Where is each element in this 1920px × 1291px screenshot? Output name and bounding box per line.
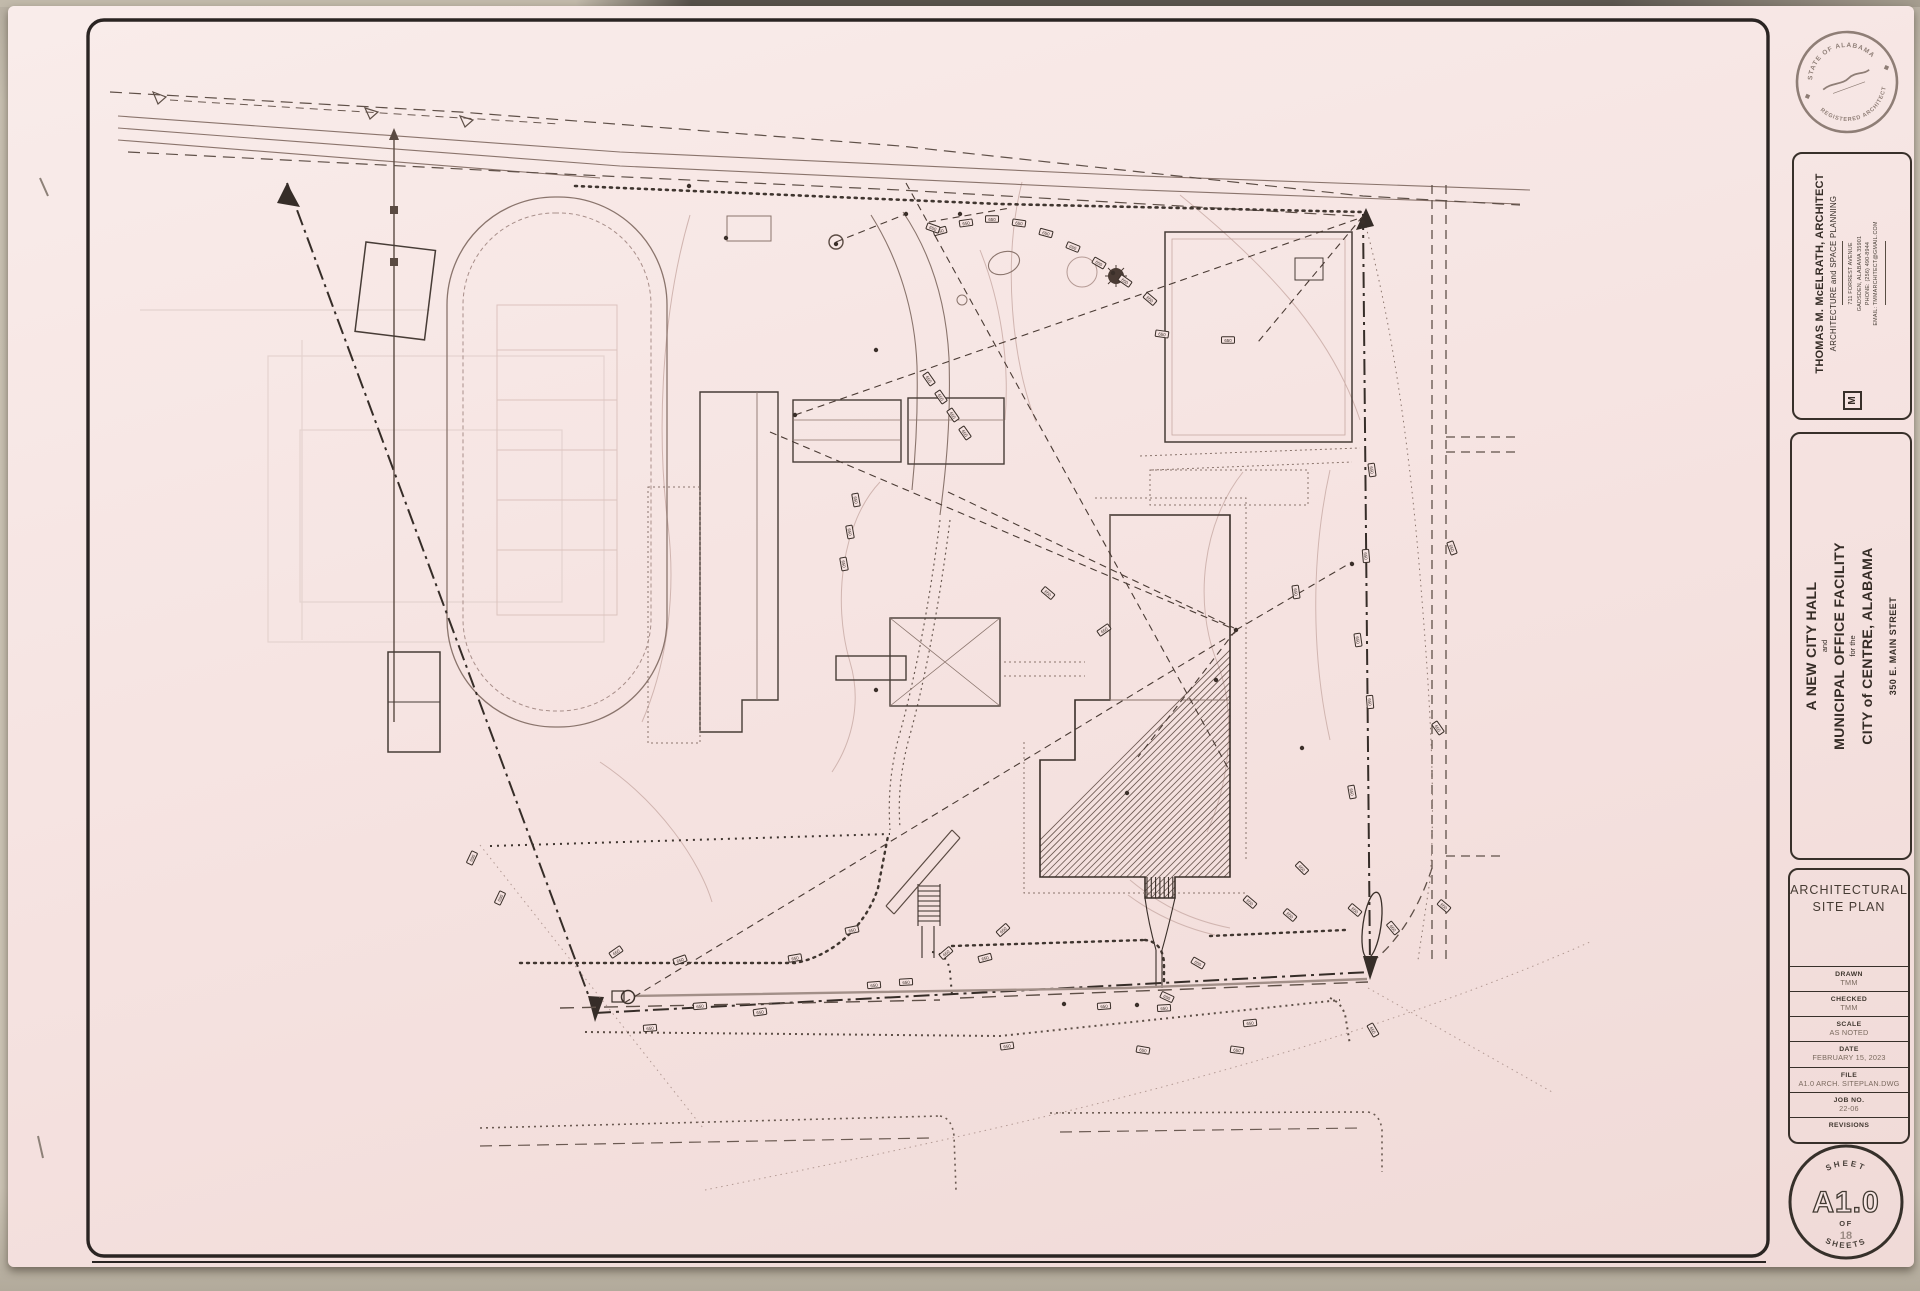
field-value: TMM [1790,978,1908,987]
field-label: CHECKED [1790,996,1908,1003]
west-buildings [355,242,440,752]
project-line1: A NEW CITY HALL [1802,542,1820,750]
stamp-signature [1822,69,1870,89]
svg-text:650: 650 [1363,552,1369,560]
svg-text:650: 650 [1246,1020,1254,1026]
svg-text:SHEET: SHEET [1824,1159,1867,1173]
bleed-ghost-lines [140,310,604,642]
title-block-field-file: FILEA1.0 ARCH. SITEPLAN.DWG [1790,1067,1908,1092]
entrance-drive [829,212,1127,515]
architect-seal-stamp: STATE OF ALABAMA REGISTERED ARCHITECT [1790,25,1905,140]
survey-dots [687,184,1365,1007]
curved-walk [889,520,950,830]
title-block-field-drawn: DRAWNTMM [1790,966,1908,991]
title-block-field-checked: CHECKEDTMM [1790,991,1908,1016]
drawing-sheet: 6506506506506506506506506506506506506506… [8,6,1914,1267]
project-line4: for the [1848,542,1858,750]
field-label: JOB NO. [1790,1097,1908,1104]
project-line2: and [1820,542,1830,750]
svg-text:650: 650 [1224,338,1232,343]
sheet-title: ARCHITECTURAL SITE PLAN [1790,870,1908,966]
gym-building [1140,232,1360,505]
project-line5: CITY of CENTRE, ALABAMA [1858,542,1876,750]
architect-address-line: PHONE: (256) 490-8944 [1864,162,1872,385]
title-block-field-date: DATEFEBRUARY 15, 2023 [1790,1041,1908,1066]
faint-diagonals [480,845,1590,1190]
architect-address-line: 711 FORREST AVENUE [1847,162,1855,385]
field-label: DRAWN [1790,971,1908,978]
stairs-and-ramp [886,830,960,958]
architect-name: THOMAS M. McELRATH, ARCHITECT [1814,162,1826,385]
architect-logo: M [1843,391,1862,410]
pencil-marks [38,178,48,1158]
field-value: FEBRUARY 15, 2023 [1790,1053,1908,1062]
title-block-fields: DRAWNTMMCHECKEDTMMSCALEAS NOTEDDATEFEBRU… [1790,966,1908,1142]
svg-text:650: 650 [870,983,878,989]
title-block-field-scale: SCALEAS NOTED [1790,1016,1908,1041]
svg-text:650: 650 [1100,1004,1108,1010]
svg-text:STATE OF ALABAMA: STATE OF ALABAMA [1799,32,1877,83]
project-line3: MUNICIPAL OFFICE FACILITY [1830,542,1848,750]
sheet-title-block: ARCHITECTURAL SITE PLAN DRAWNTMMCHECKEDT… [1788,868,1910,1144]
field-label: REVISIONS [1790,1122,1908,1129]
svg-text:650: 650 [646,1026,654,1032]
running-track [447,197,667,727]
stamp-arc-top: STATE OF ALABAMA [1799,32,1877,83]
project-title-box: A NEW CITY HALL and MUNICIPAL OFFICE FAC… [1790,432,1912,860]
sheet-number-circle: SHEET A1.0 OF 18 SHEETS [1786,1142,1906,1262]
sheet-count: 18 [1840,1230,1852,1242]
field-value: A1.0 ARCH. SITEPLAN.DWG [1790,1079,1908,1088]
drawing-border [88,20,1768,1262]
field-label: SCALE [1790,1021,1908,1028]
svg-text:REGISTERED ARCHITECT: REGISTERED ARCHITECT [1818,84,1896,133]
east-road [1363,185,1515,965]
new-building-hatched [960,470,1709,988]
svg-text:650: 650 [902,980,910,985]
architect-title-box: M THOMAS M. McELRATH, ARCHITECT ARCHITEC… [1792,152,1912,420]
svg-text:650: 650 [696,1004,704,1010]
svg-text:650: 650 [1367,698,1373,706]
lower-street [480,1112,1382,1190]
field-value: AS NOTED [1790,1028,1908,1037]
south-street [490,834,1386,1045]
contour-tags: 6506506506506506506506506506506506506506… [466,216,1457,1054]
title-block-field-job-no-: JOB NO.22-06 [1790,1092,1908,1117]
sheet-circle-top: SHEET [1824,1159,1867,1173]
stamp-arc-bottom: REGISTERED ARCHITECT [1818,84,1896,133]
field-label: FILE [1790,1072,1908,1079]
sheet-number: A1.0 [1812,1186,1879,1219]
north-road [110,92,1530,216]
field-value [1790,1129,1908,1138]
sheet-of: OF [1839,1219,1852,1228]
site-plan-svg: 6506506506506506506506506506506506506506… [8,6,1914,1267]
architect-address-line: EMAIL: TMMARCHITECT@GMAIL.COM [1872,162,1880,385]
field-value: TMM [1790,1003,1908,1012]
property-boundary [277,183,1378,1022]
fence-line [389,128,399,722]
field-value: 22-06 [1790,1104,1908,1113]
existing-buildings [648,216,1085,743]
svg-text:650: 650 [988,217,996,222]
field-label: DATE [1790,1046,1908,1053]
architect-address-line: GADSDEN, ALABAMA 35901 [1856,162,1864,385]
photo-of-drawing: 6506506506506506506506506506506506506506… [0,0,1920,1291]
architect-tagline: ARCHITECTURE and SPACE PLANNING [1829,162,1838,385]
project-address: 350 E. MAIN STREET [1888,542,1900,750]
svg-text:650: 650 [1160,1006,1168,1011]
architect-address: 711 FORREST AVENUEGADSDEN, ALABAMA 35901… [1847,162,1881,385]
leader-lines [624,183,1363,1003]
title-block-field-revisions: REVISIONS [1790,1117,1908,1142]
